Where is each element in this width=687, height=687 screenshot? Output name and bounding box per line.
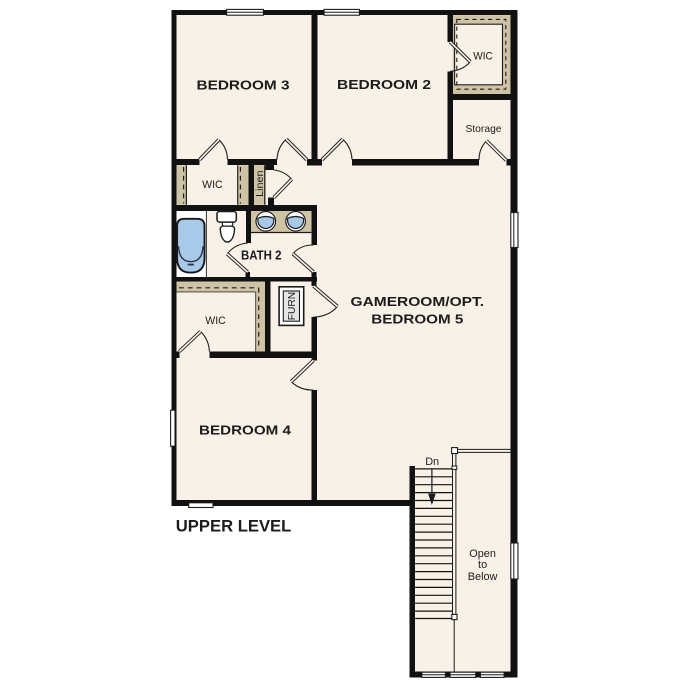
svg-text:Storage: Storage bbox=[465, 124, 501, 135]
svg-text:GAMEROOM/OPT.: GAMEROOM/OPT. bbox=[351, 295, 485, 309]
svg-text:BEDROOM 3: BEDROOM 3 bbox=[197, 78, 290, 92]
svg-text:WIC: WIC bbox=[202, 179, 223, 191]
svg-text:WIC: WIC bbox=[473, 50, 493, 62]
svg-text:WIC: WIC bbox=[205, 315, 226, 327]
svg-text:Linen: Linen bbox=[255, 171, 266, 197]
svg-text:Below: Below bbox=[468, 571, 498, 583]
svg-text:FURN: FURN bbox=[287, 292, 298, 320]
svg-text:BEDROOM 5: BEDROOM 5 bbox=[371, 313, 463, 327]
svg-text:to: to bbox=[478, 559, 487, 571]
svg-text:BATH 2: BATH 2 bbox=[241, 248, 282, 262]
svg-text:BEDROOM 4: BEDROOM 4 bbox=[199, 424, 291, 438]
svg-text:UPPER LEVEL: UPPER LEVEL bbox=[176, 517, 291, 535]
svg-text:Dn: Dn bbox=[425, 456, 439, 468]
svg-text:BEDROOM 2: BEDROOM 2 bbox=[337, 78, 431, 92]
